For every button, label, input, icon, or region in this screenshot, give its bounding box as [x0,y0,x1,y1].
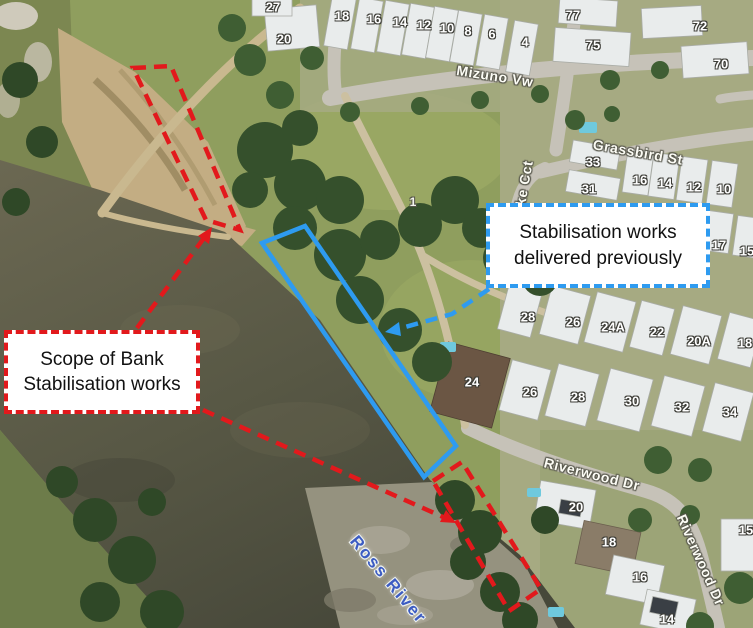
blue-callout-line-2: delivered previously [514,246,682,271]
lower-scope-outline [433,462,541,611]
red-callout-line-2: Stabilisation works [23,372,180,397]
red-callout-line-1: Scope of Bank [40,347,164,372]
red-leader-lower [203,410,443,517]
previous-works-outline [262,226,456,477]
blue-callout-line-1: Stabilisation works [519,220,676,245]
map-figure: Mizuno VwGrassbird Stke CctRiverwood DrR… [0,0,753,628]
red-leader-upper [137,238,204,328]
red-callout-box: Scope of Bank Stabilisation works [4,330,200,414]
blue-callout-box: Stabilisation works delivered previously [486,203,710,288]
annotation-overlay [0,0,753,628]
upper-scope-outline [133,66,240,230]
blue-leader-line [398,289,489,329]
blue-arrowhead-icon [385,322,401,336]
